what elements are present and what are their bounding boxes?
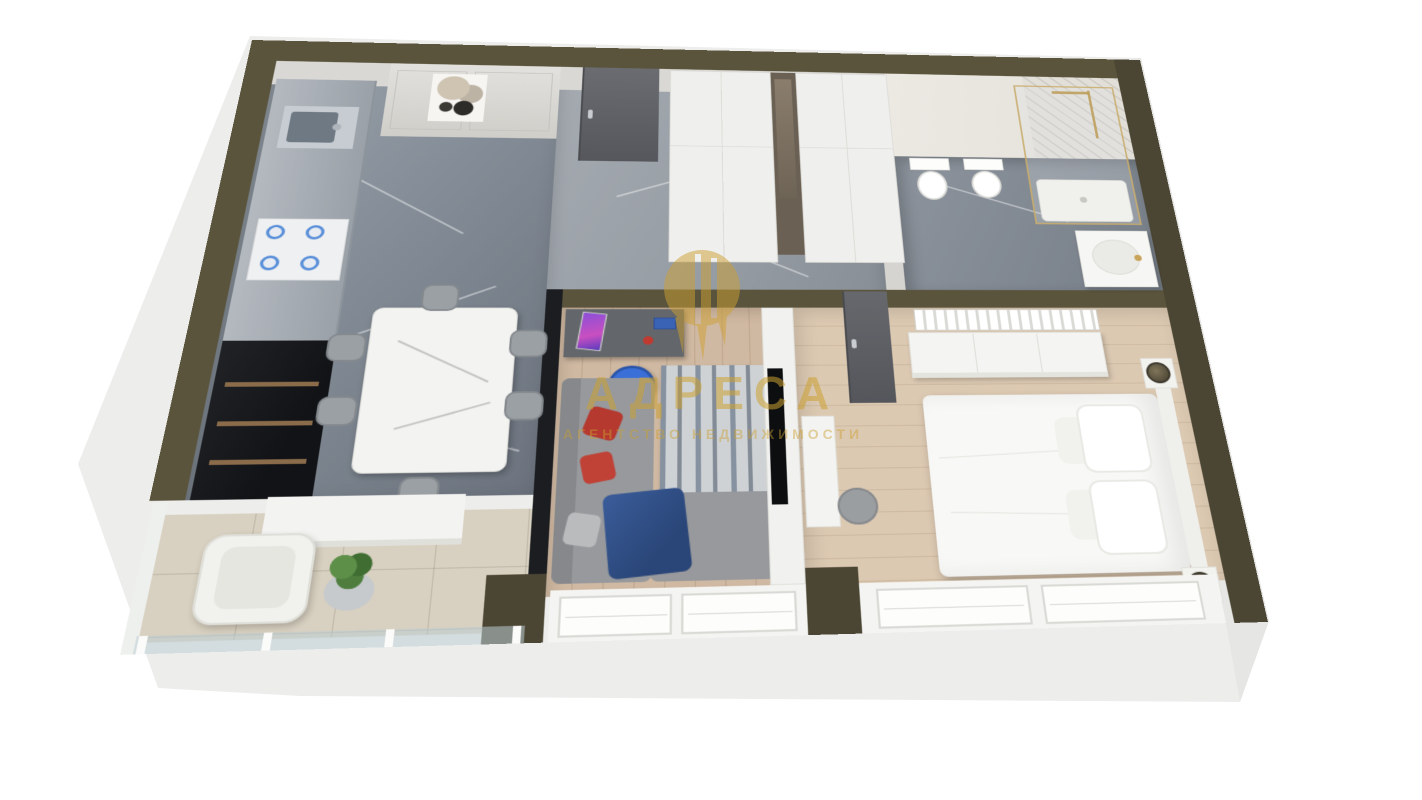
dining-chair bbox=[503, 391, 544, 421]
shower-drain bbox=[1079, 197, 1087, 203]
blue-throw-blanket bbox=[602, 487, 693, 580]
apartment-3d-floorplan-render: АДРЕСА АГЕНТСТВО НЕДВИЖИМОСТИ bbox=[0, 0, 1422, 800]
window-mullion bbox=[565, 614, 667, 618]
adresa-gold-drop-logo-icon bbox=[645, 248, 760, 360]
wardrobe-seam bbox=[841, 75, 856, 262]
radiator bbox=[913, 309, 1100, 330]
window-mullion bbox=[688, 611, 792, 615]
armchair-cushion bbox=[212, 546, 298, 610]
dining-chair bbox=[324, 333, 367, 361]
door-handle bbox=[851, 339, 857, 348]
toilet bbox=[909, 158, 950, 171]
window-mullion bbox=[884, 605, 1024, 610]
sink-basin bbox=[286, 112, 339, 143]
watermark-subtitle: АГЕНТСТВО НЕДВИЖИМОСТИ bbox=[548, 426, 878, 442]
cabinet-shelf bbox=[224, 382, 319, 387]
dining-table bbox=[350, 308, 518, 474]
window-mullion bbox=[1050, 600, 1197, 605]
bathroom-bedroom-wall bbox=[906, 290, 1167, 308]
watermark-title: АДРЕСА bbox=[552, 366, 872, 420]
dining-chair bbox=[420, 284, 461, 311]
hall-wardrobe-left bbox=[668, 70, 778, 262]
marble-vein bbox=[397, 340, 489, 383]
cooktop bbox=[246, 218, 349, 280]
dining-chair bbox=[314, 396, 359, 426]
hall-wardrobe-right bbox=[795, 73, 905, 263]
framed-artwork bbox=[427, 74, 488, 122]
living-window bbox=[557, 594, 672, 638]
bidet bbox=[963, 159, 1004, 171]
living-window bbox=[681, 591, 798, 635]
dining-chair bbox=[508, 330, 548, 358]
bed-pillow bbox=[1075, 404, 1155, 473]
bedroom-window bbox=[876, 585, 1033, 629]
marble-vein bbox=[393, 402, 490, 430]
bedroom-window bbox=[1040, 581, 1206, 624]
wardrobe-seam bbox=[721, 72, 725, 261]
bed-pillow bbox=[1087, 479, 1170, 555]
bedroom-dresser bbox=[908, 332, 1109, 378]
door-handle bbox=[588, 110, 593, 119]
gold-faucet bbox=[1134, 255, 1143, 261]
cabinet-shelf bbox=[217, 421, 313, 427]
balustrade-post bbox=[512, 626, 521, 644]
